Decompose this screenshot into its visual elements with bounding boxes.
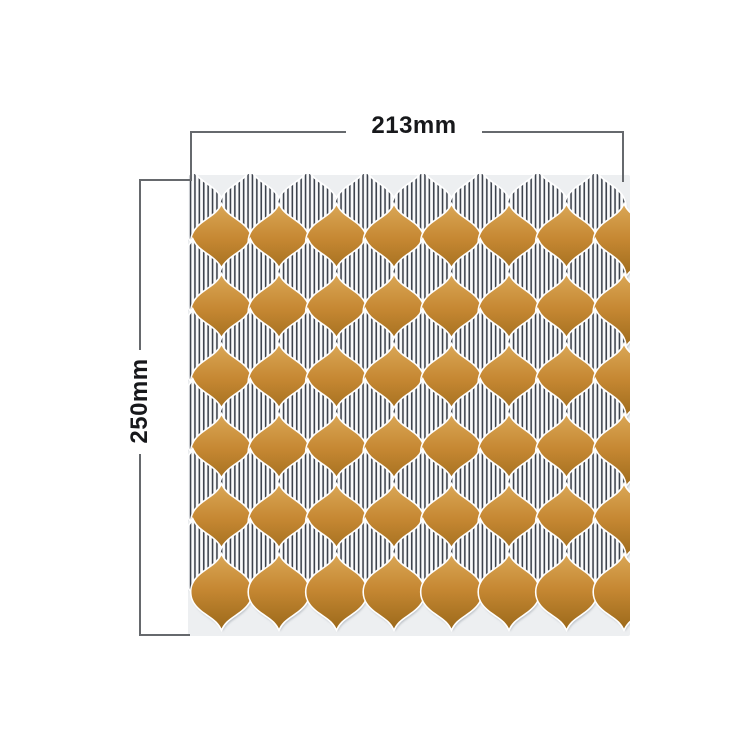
width-dimension-line-left bbox=[190, 131, 346, 133]
height-dimension-tick-bottom bbox=[139, 634, 190, 636]
height-dimension-line-bottom bbox=[139, 454, 141, 636]
width-dimension-tick-right bbox=[622, 131, 624, 182]
mosaic-tile-sheet bbox=[188, 174, 630, 654]
height-dimension-line-top bbox=[139, 180, 141, 350]
height-dimension-tick-top bbox=[139, 179, 192, 181]
width-dimension-label: 213mm bbox=[371, 114, 456, 138]
width-dimension-line-right bbox=[482, 131, 624, 133]
product-dimension-diagram: 213mm 250mm bbox=[0, 0, 750, 750]
width-dimension-tick-left bbox=[190, 131, 192, 180]
height-dimension-label: 250mm bbox=[128, 358, 152, 443]
